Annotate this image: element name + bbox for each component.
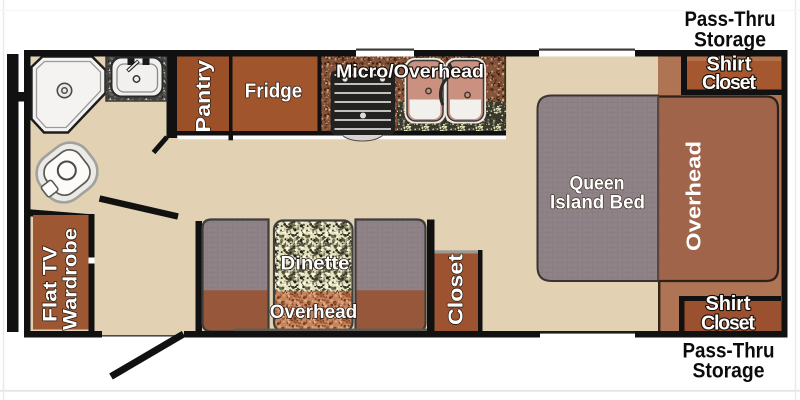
svg-text:Closet: Closet — [702, 72, 756, 94]
svg-text:Queen: Queen — [570, 174, 625, 195]
svg-text:Flat TV: Flat TV — [40, 246, 61, 322]
svg-text:Fridge: Fridge — [245, 81, 303, 103]
svg-text:Wardrobe: Wardrobe — [60, 228, 81, 330]
svg-text:Overhead: Overhead — [270, 302, 358, 323]
svg-text:Overhead: Overhead — [683, 141, 706, 251]
svg-text:Pantry: Pantry — [193, 59, 215, 133]
svg-text:Dinette: Dinette — [281, 254, 350, 275]
svg-text:Closet: Closet — [446, 254, 468, 325]
svg-text:Storage: Storage — [694, 28, 766, 52]
svg-text:Storage: Storage — [693, 359, 765, 383]
svg-text:Closet: Closet — [701, 313, 755, 335]
svg-text:Island Bed: Island Bed — [550, 193, 645, 214]
svg-text:Micro/Overhead: Micro/Overhead — [336, 61, 484, 82]
